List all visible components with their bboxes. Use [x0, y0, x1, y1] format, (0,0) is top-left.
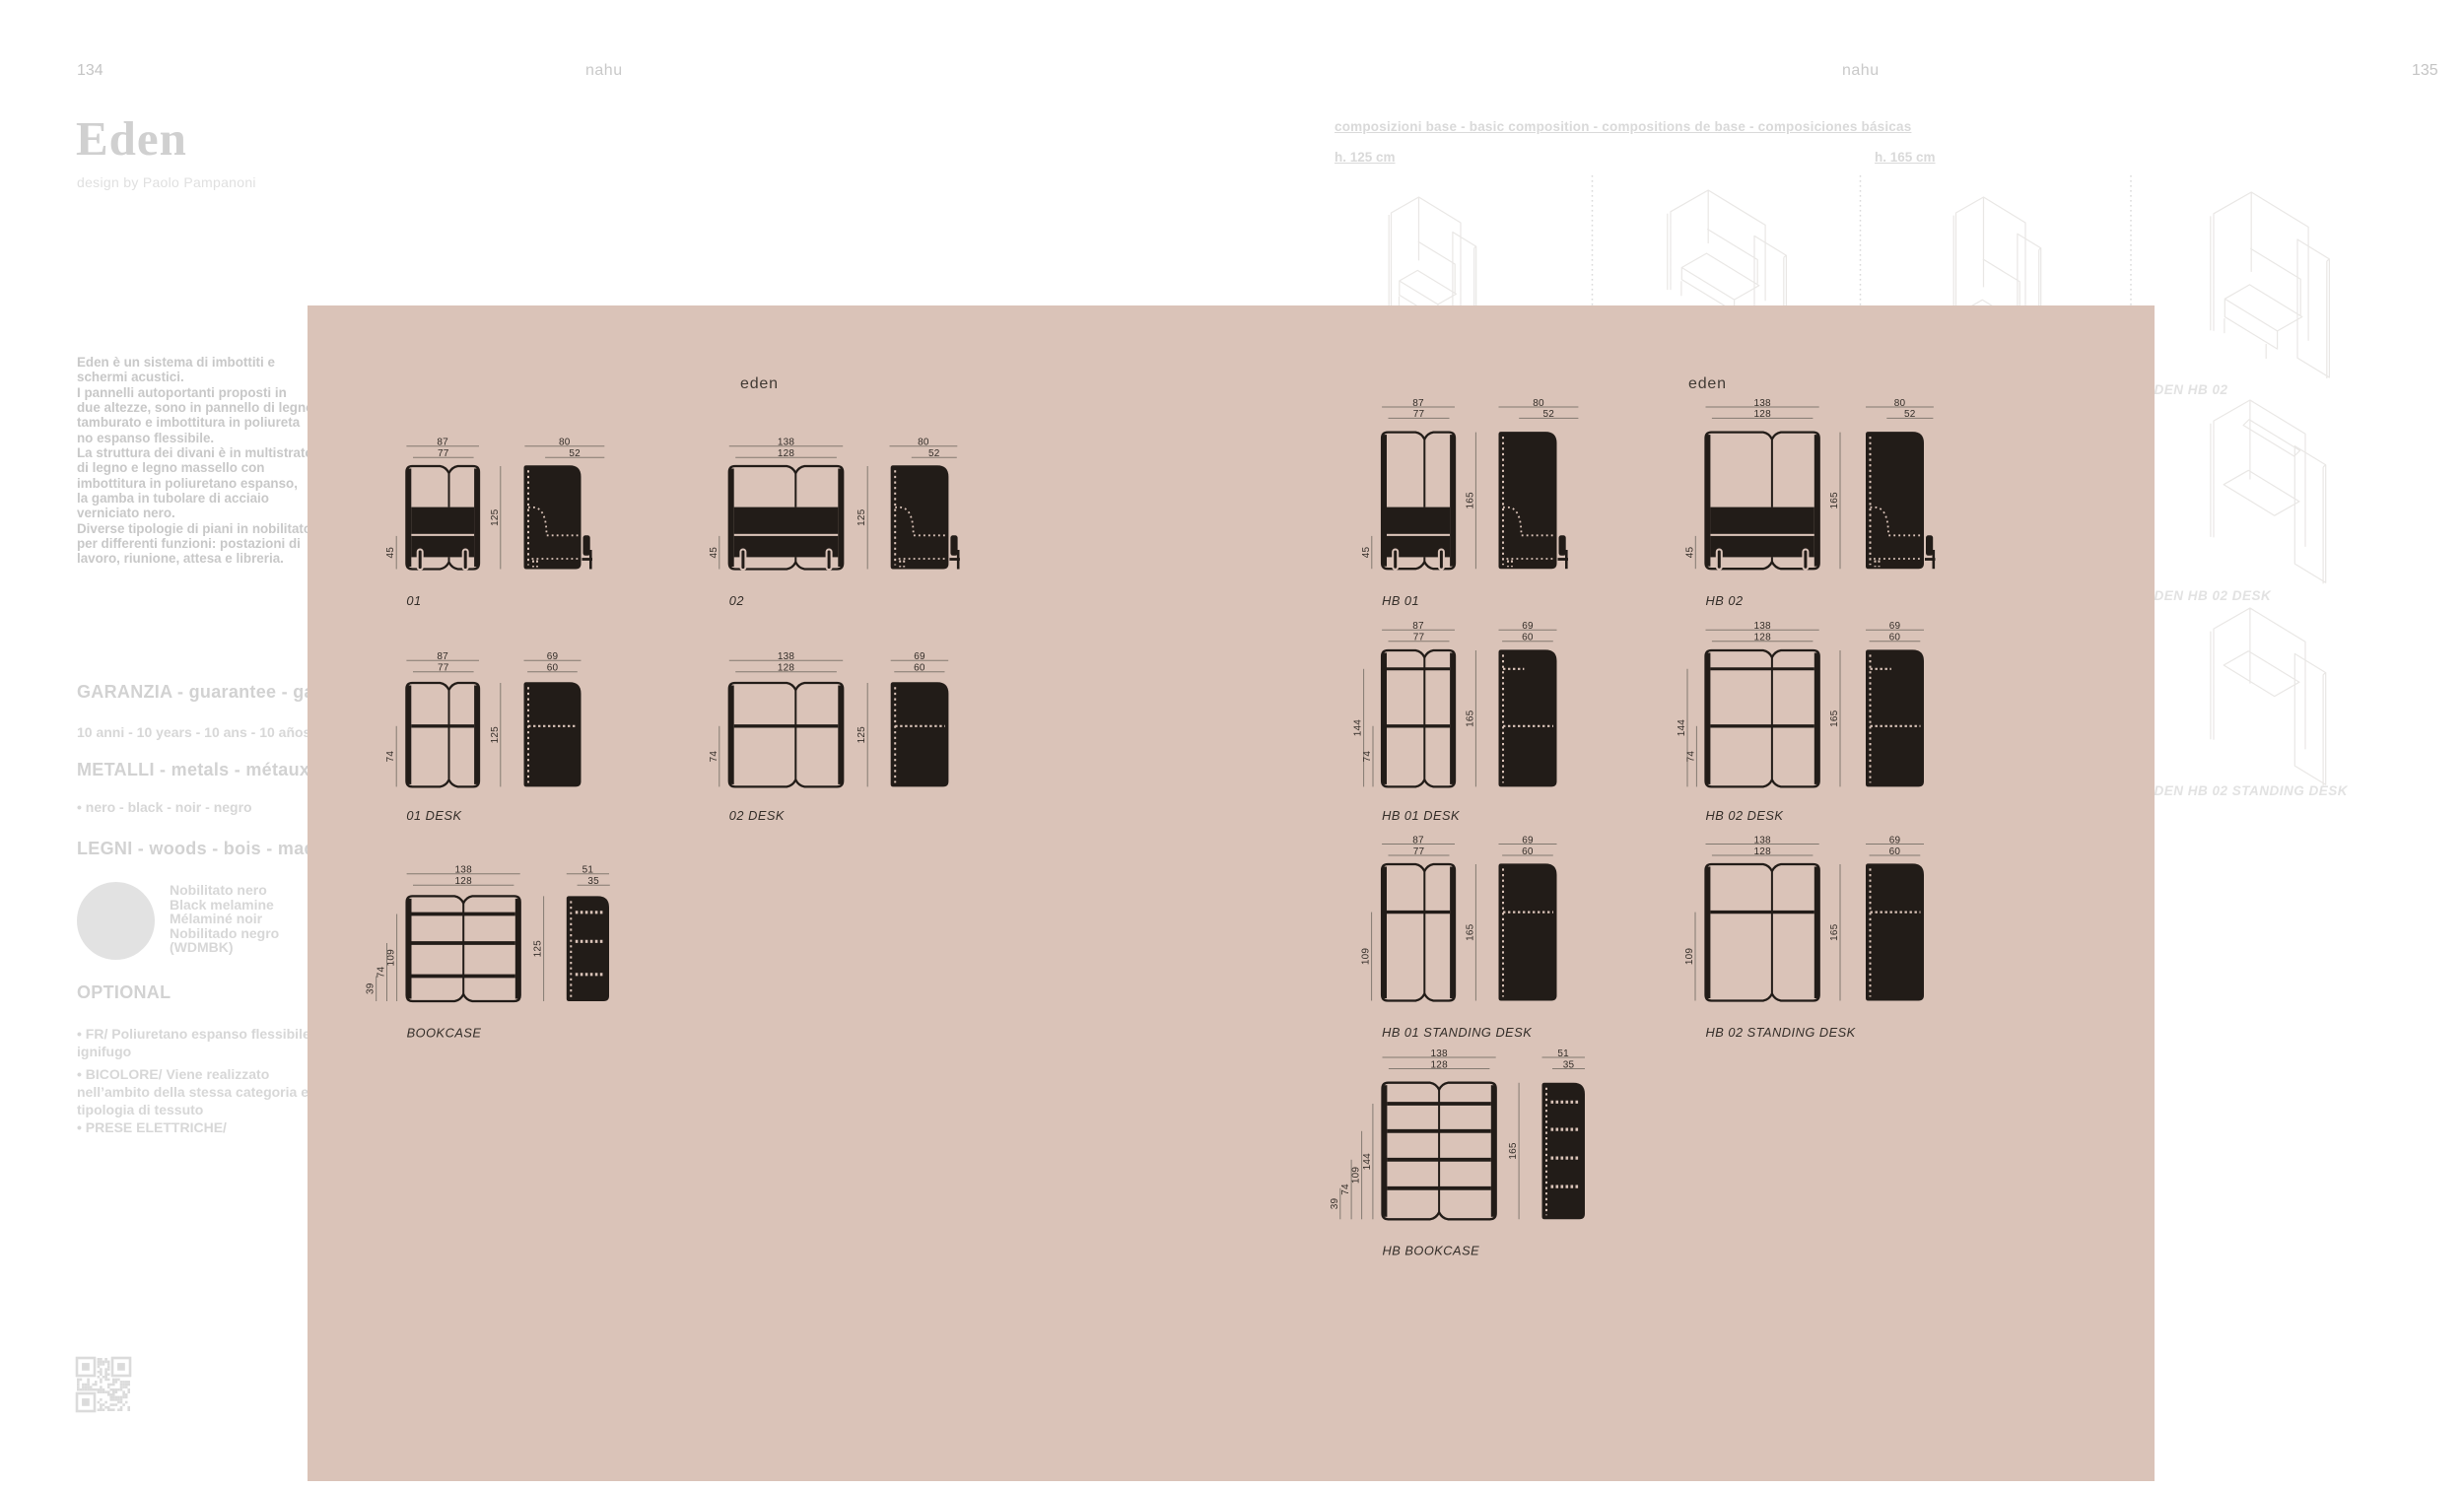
- svg-text:165: 165: [1465, 710, 1475, 727]
- svg-text:eden: eden: [1688, 375, 1727, 392]
- svg-text:01: 01: [406, 593, 421, 608]
- svg-text:45: 45: [1361, 547, 1372, 559]
- svg-text:69: 69: [1522, 835, 1534, 846]
- svg-text:128: 128: [1754, 846, 1772, 857]
- svg-text:165: 165: [1508, 1142, 1519, 1160]
- svg-text:165: 165: [1465, 492, 1475, 509]
- svg-text:eden: eden: [740, 375, 779, 392]
- svg-text:HB 02: HB 02: [1706, 593, 1744, 608]
- svg-text:69: 69: [547, 651, 559, 662]
- svg-text:80: 80: [1533, 398, 1544, 409]
- svg-text:87: 87: [1412, 621, 1424, 632]
- svg-text:138: 138: [1430, 1049, 1448, 1059]
- svg-text:144: 144: [1362, 1153, 1373, 1171]
- svg-text:87: 87: [437, 651, 448, 662]
- svg-text:77: 77: [1413, 633, 1425, 643]
- svg-text:128: 128: [778, 448, 795, 459]
- svg-text:128: 128: [1754, 409, 1772, 420]
- svg-text:125: 125: [490, 726, 501, 744]
- svg-text:87: 87: [1412, 398, 1424, 409]
- svg-text:125: 125: [856, 726, 867, 744]
- svg-text:HB 01 DESK: HB 01 DESK: [1382, 808, 1460, 823]
- svg-text:69: 69: [1889, 621, 1901, 632]
- svg-text:80: 80: [1894, 398, 1906, 409]
- svg-text:125: 125: [490, 508, 501, 526]
- svg-text:74: 74: [1340, 1184, 1351, 1195]
- svg-text:02: 02: [729, 593, 744, 608]
- svg-text:52: 52: [569, 448, 581, 459]
- svg-text:144: 144: [1353, 719, 1364, 737]
- svg-text:165: 165: [1829, 710, 1840, 727]
- svg-text:60: 60: [1522, 633, 1534, 643]
- svg-text:165: 165: [1829, 492, 1840, 509]
- svg-text:138: 138: [1753, 621, 1771, 632]
- svg-text:77: 77: [438, 663, 449, 674]
- svg-text:109: 109: [1361, 948, 1372, 966]
- svg-text:77: 77: [1413, 846, 1425, 857]
- svg-text:60: 60: [1889, 846, 1901, 857]
- svg-text:109: 109: [386, 949, 397, 967]
- svg-text:138: 138: [778, 651, 795, 662]
- svg-text:60: 60: [1522, 846, 1534, 857]
- svg-text:52: 52: [928, 448, 940, 459]
- svg-text:109: 109: [1351, 1167, 1362, 1184]
- svg-text:80: 80: [918, 438, 929, 448]
- svg-text:60: 60: [547, 663, 559, 674]
- svg-text:51: 51: [582, 865, 594, 876]
- svg-text:138: 138: [1753, 835, 1771, 846]
- svg-text:138: 138: [455, 865, 473, 876]
- svg-text:52: 52: [1543, 409, 1555, 420]
- svg-text:144: 144: [1677, 719, 1687, 737]
- svg-text:87: 87: [1412, 835, 1424, 846]
- svg-text:HB 01: HB 01: [1382, 593, 1419, 608]
- svg-text:39: 39: [366, 982, 376, 994]
- svg-text:BOOKCASE: BOOKCASE: [407, 1025, 482, 1040]
- svg-text:74: 74: [385, 751, 396, 763]
- svg-text:01 DESK: 01 DESK: [406, 808, 461, 823]
- svg-text:69: 69: [914, 651, 925, 662]
- svg-text:138: 138: [1753, 398, 1771, 409]
- svg-text:45: 45: [709, 547, 719, 559]
- svg-text:69: 69: [1522, 621, 1534, 632]
- svg-text:128: 128: [1431, 1059, 1449, 1070]
- svg-text:128: 128: [778, 663, 795, 674]
- svg-text:HB 01 STANDING DESK: HB 01 STANDING DESK: [1382, 1025, 1532, 1040]
- svg-text:165: 165: [1829, 923, 1840, 941]
- svg-text:45: 45: [1684, 547, 1695, 559]
- svg-text:74: 74: [709, 751, 719, 763]
- svg-text:77: 77: [438, 448, 449, 459]
- svg-text:125: 125: [856, 508, 867, 526]
- svg-text:45: 45: [385, 547, 396, 559]
- svg-text:128: 128: [455, 876, 473, 887]
- svg-text:HB 02 DESK: HB 02 DESK: [1706, 808, 1784, 823]
- svg-text:HB 02 STANDING DESK: HB 02 STANDING DESK: [1706, 1025, 1856, 1040]
- svg-text:87: 87: [437, 438, 448, 448]
- svg-text:02 DESK: 02 DESK: [729, 808, 785, 823]
- svg-text:128: 128: [1754, 633, 1772, 643]
- svg-text:39: 39: [1330, 1198, 1340, 1210]
- svg-text:51: 51: [1557, 1049, 1569, 1059]
- svg-text:60: 60: [914, 663, 925, 674]
- svg-text:60: 60: [1889, 633, 1901, 643]
- svg-text:74: 74: [1685, 751, 1696, 763]
- svg-text:69: 69: [1889, 835, 1901, 846]
- svg-text:138: 138: [778, 438, 795, 448]
- svg-text:74: 74: [376, 967, 387, 979]
- svg-text:80: 80: [559, 438, 571, 448]
- svg-text:109: 109: [1684, 948, 1695, 966]
- svg-text:35: 35: [587, 876, 599, 887]
- svg-text:165: 165: [1465, 923, 1475, 941]
- svg-text:125: 125: [533, 940, 544, 958]
- svg-text:74: 74: [1362, 751, 1373, 763]
- svg-text:HB BOOKCASE: HB BOOKCASE: [1383, 1244, 1480, 1258]
- svg-text:35: 35: [1563, 1059, 1575, 1070]
- svg-text:77: 77: [1413, 409, 1425, 420]
- svg-text:52: 52: [1904, 409, 1916, 420]
